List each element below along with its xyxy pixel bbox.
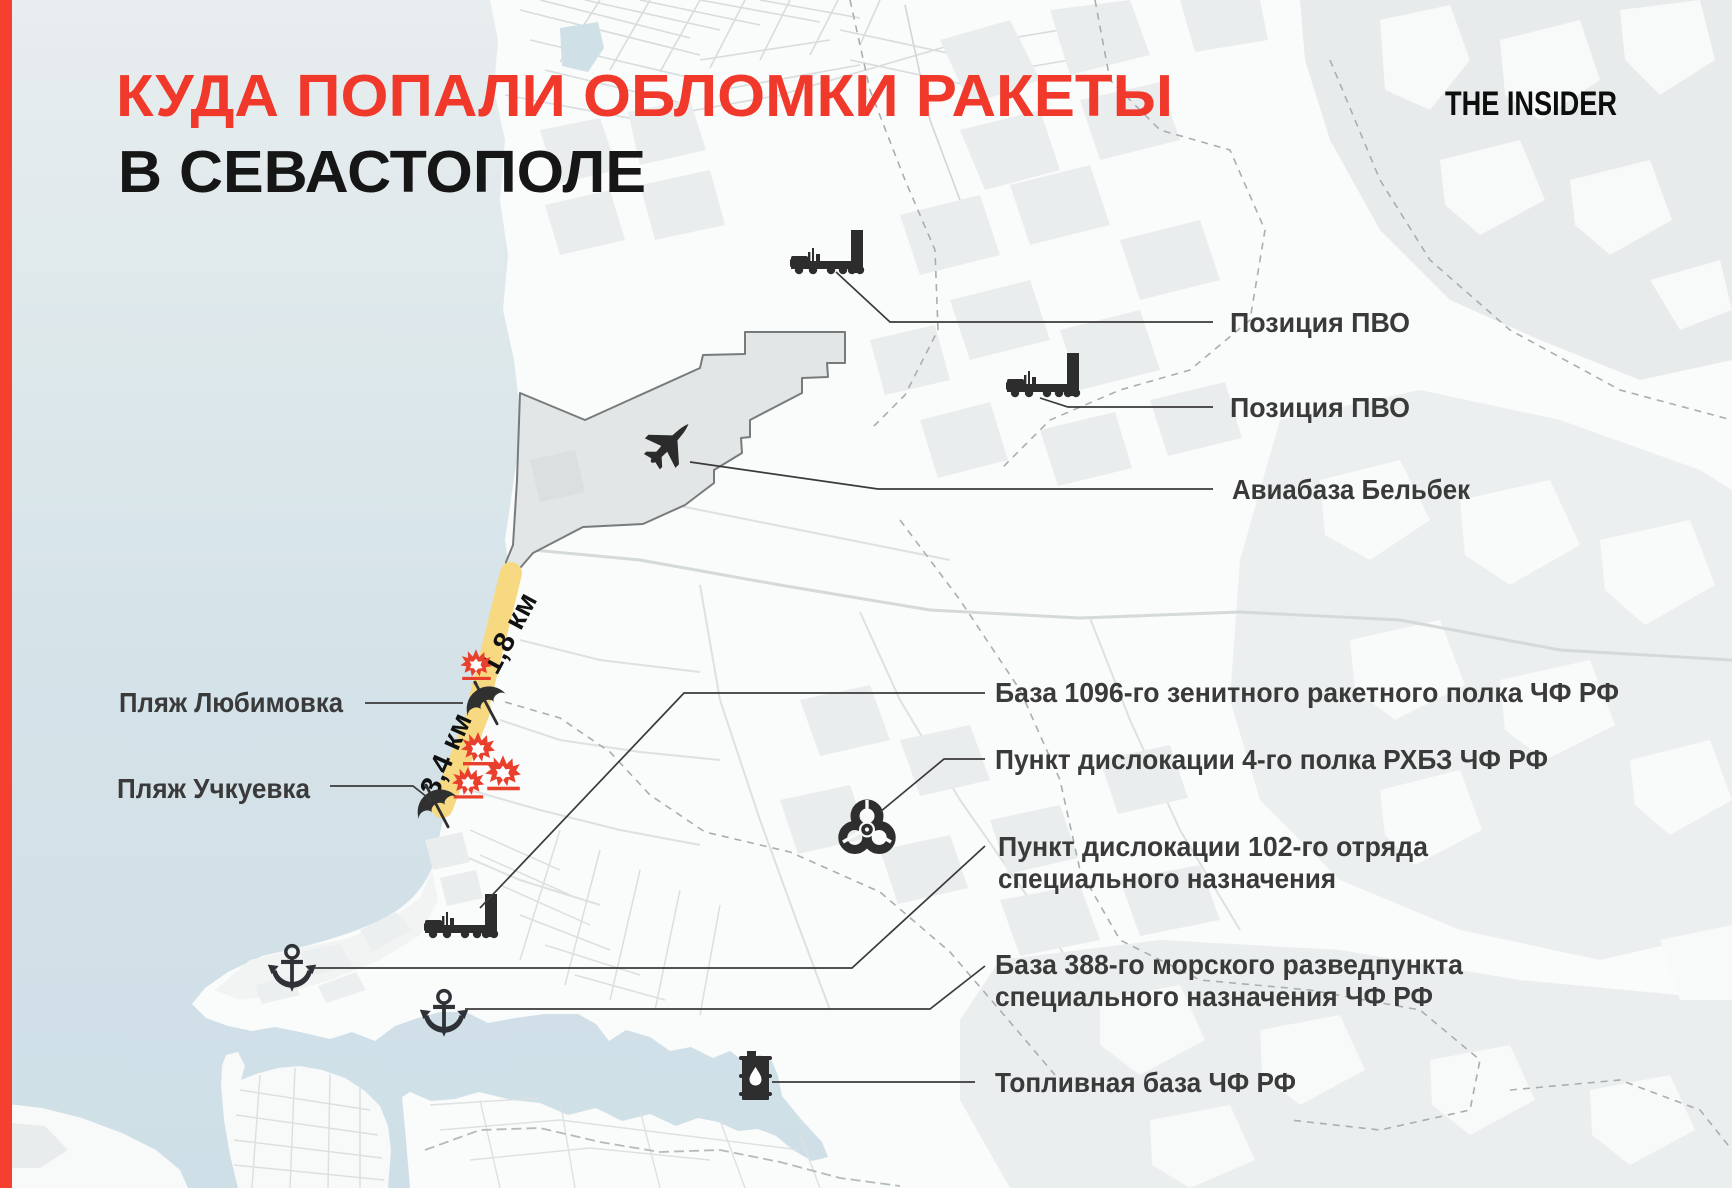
svg-text:Топливная база ЧФ РФ: Топливная база ЧФ РФ: [995, 1067, 1296, 1098]
svg-text:База 388-го морского разведпун: База 388-го морского разведпункта: [995, 949, 1463, 980]
svg-text:специального назначения: специального назначения: [998, 863, 1336, 894]
svg-text:Пляж Любимовка: Пляж Любимовка: [119, 687, 343, 718]
svg-text:Пункт дислокации 102-го отряда: Пункт дислокации 102-го отряда: [998, 831, 1428, 862]
svg-text:Позиция ПВО: Позиция ПВО: [1230, 307, 1410, 338]
svg-text:В СЕВАСТОПОЛЕ: В СЕВАСТОПОЛЕ: [118, 139, 646, 205]
svg-text:Пляж Учкуевка: Пляж Учкуевка: [117, 773, 310, 804]
svg-text:КУДА ПОПАЛИ ОБЛОМКИ РАКЕТЫ: КУДА ПОПАЛИ ОБЛОМКИ РАКЕТЫ: [116, 63, 1173, 129]
svg-text:THE INSIDER: THE INSIDER: [1445, 85, 1617, 123]
svg-text:специального назначения ЧФ РФ: специального назначения ЧФ РФ: [995, 981, 1433, 1012]
svg-text:Пункт дислокации 4-го полка РХ: Пункт дислокации 4-го полка РХБЗ ЧФ РФ: [995, 744, 1548, 775]
svg-text:Авиабаза Бельбек: Авиабаза Бельбек: [1232, 474, 1471, 505]
svg-text:База 1096-го зенитного ракетно: База 1096-го зенитного ракетного полка Ч…: [995, 677, 1619, 708]
svg-text:Позиция ПВО: Позиция ПВО: [1230, 392, 1410, 423]
